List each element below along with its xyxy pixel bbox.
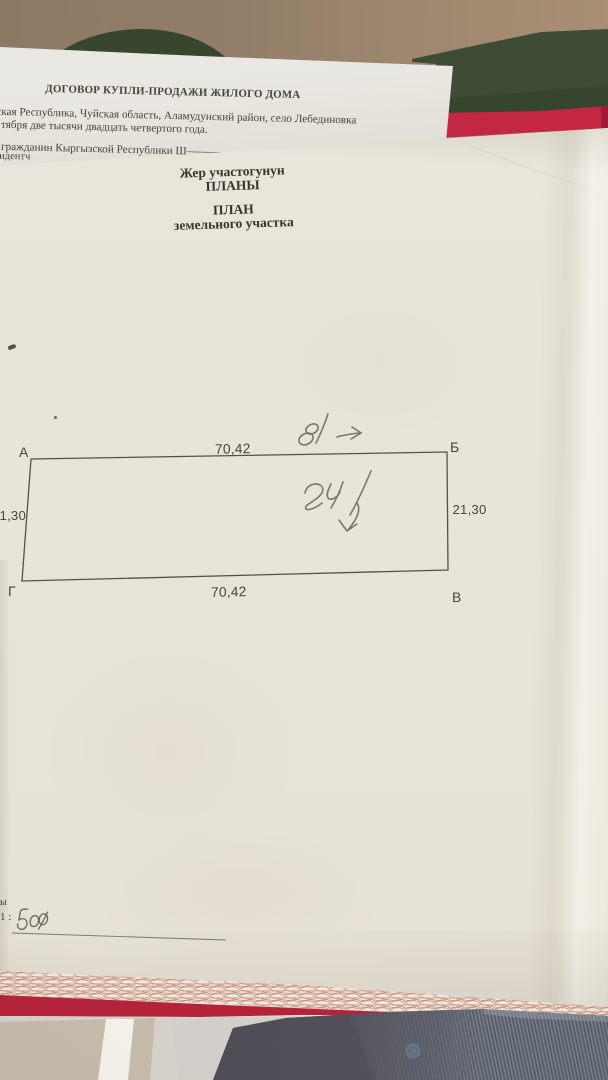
svg-text:70,42: 70,42 (211, 584, 247, 600)
svg-text:70,42: 70,42 (215, 441, 251, 457)
svg-text:А: А (19, 444, 29, 460)
svg-text:21,30: 21,30 (453, 502, 487, 517)
svg-text:В: В (452, 589, 461, 605)
svg-text:Г: Г (8, 583, 16, 599)
svg-text:Б: Б (450, 439, 459, 455)
svg-text:21,30: 21,30 (0, 508, 26, 523)
